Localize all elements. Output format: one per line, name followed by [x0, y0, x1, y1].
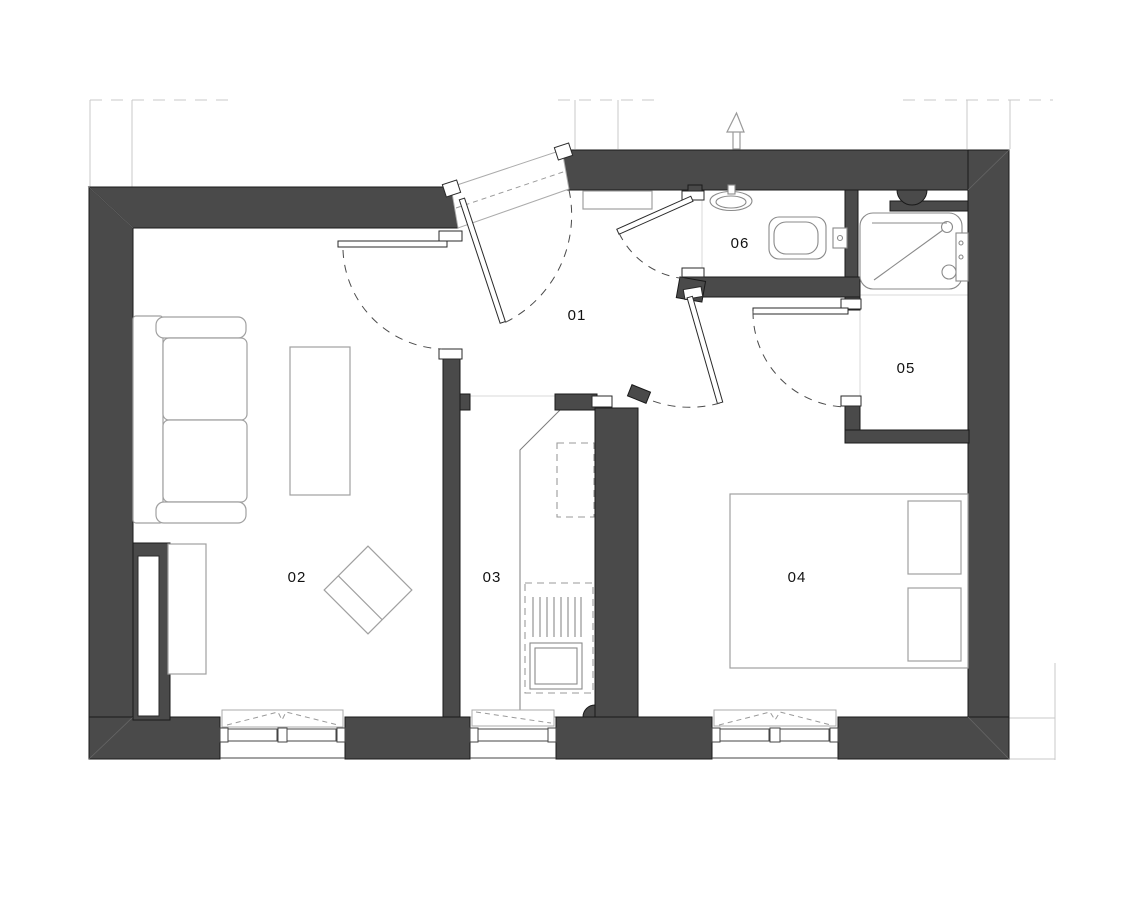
- kitchen-counter-group: [520, 410, 595, 717]
- sofa-back: [133, 316, 163, 523]
- shower-valve-panel: [956, 233, 968, 281]
- window-sill: [714, 710, 836, 726]
- window-frame-block: [770, 728, 780, 742]
- armchair-seat: [324, 546, 412, 634]
- window-casement: [780, 729, 829, 741]
- door-living-room: [338, 231, 462, 359]
- door-jamb: [439, 231, 462, 241]
- window-kitchen: [470, 710, 556, 758]
- window-frame-block: [337, 728, 345, 742]
- wall-wc-bottom: [682, 277, 860, 297]
- wardrobe: [168, 544, 206, 674]
- wall-kitchen-entry-stub: [460, 394, 470, 410]
- north-arrow-icon: [727, 113, 744, 149]
- wall-top-left: [89, 187, 458, 228]
- window-frame-block: [548, 728, 556, 742]
- wall-top-right: [557, 150, 1009, 190]
- hallway-cabinet: [583, 191, 652, 209]
- north-arrow-head: [727, 113, 744, 132]
- wall-bottom-4: [838, 717, 1009, 759]
- room-label-wc: 06: [731, 235, 750, 252]
- pillow: [908, 501, 961, 574]
- living-room-furniture: [133, 316, 412, 674]
- north-arrow-shaft: [733, 130, 740, 149]
- armchair: [324, 546, 412, 634]
- window-casement: [228, 729, 277, 741]
- window-frame-block: [470, 728, 478, 742]
- sofa-cushion: [163, 338, 247, 420]
- floorplan-svg: 01 02 03 04 05 06: [0, 0, 1132, 900]
- door-leaf: [338, 241, 447, 247]
- door-leaf: [687, 296, 723, 403]
- door-shower-room: [753, 299, 861, 407]
- wall-bottom-3: [556, 717, 712, 759]
- pillow: [908, 588, 961, 661]
- wall-boiler-nook-ledge: [890, 201, 968, 211]
- kitchen-oven: [530, 643, 582, 689]
- wall-kitchen-top: [555, 394, 597, 410]
- window-bedroom: [712, 710, 838, 758]
- wall-left: [89, 187, 133, 759]
- sideboard: [290, 347, 350, 495]
- wall-shower-bottom: [845, 430, 969, 443]
- wall-living-kitchen: [443, 352, 460, 717]
- wall-right: [968, 150, 1009, 759]
- sofa-cushion: [163, 420, 247, 502]
- sink-faucet: [728, 185, 735, 194]
- window-frame-block: [712, 728, 720, 742]
- window-frame-block: [830, 728, 838, 742]
- toilet-flush-plate: [833, 228, 847, 248]
- bedroom-furniture: [730, 494, 968, 668]
- shower-knob: [942, 265, 956, 279]
- room-label-shower-room: 05: [897, 360, 916, 377]
- room-label-living-room: 02: [288, 569, 307, 586]
- room-label-bedroom: 04: [788, 569, 807, 586]
- door-stop-block: [627, 385, 650, 404]
- window-casement: [478, 729, 548, 741]
- wall-kitchen-bedroom: [595, 408, 638, 717]
- door-swing-arc: [753, 311, 846, 407]
- door-swing-arc: [619, 233, 691, 279]
- door-jamb: [592, 396, 612, 407]
- window-living-room: [220, 710, 345, 758]
- windows: [220, 710, 838, 758]
- door-swing-arc: [641, 396, 720, 407]
- door-jamb: [841, 396, 861, 406]
- room-label-hallway: 01: [568, 307, 587, 324]
- door-swing-arc: [502, 190, 572, 324]
- door-jamb: [682, 268, 704, 277]
- door-bedroom: [592, 287, 723, 408]
- room-label-kitchen: 03: [483, 569, 502, 586]
- wall-bottom-1: [89, 717, 220, 759]
- window-casement: [287, 729, 336, 741]
- door-swing-arc: [343, 250, 442, 349]
- chimney-niche: [138, 556, 159, 716]
- window-casement: [720, 729, 769, 741]
- wall-bottom-2: [345, 717, 470, 759]
- window-sill: [472, 710, 554, 726]
- sofa-armrest-bottom: [156, 502, 246, 523]
- floorplan-canvas: 01 02 03 04 05 06: [0, 0, 1132, 900]
- sofa-armrest-top: [156, 317, 246, 338]
- window-frame-block: [278, 728, 287, 742]
- door-leaf: [753, 308, 848, 314]
- door-jamb: [439, 349, 462, 359]
- window-frame-block: [220, 728, 228, 742]
